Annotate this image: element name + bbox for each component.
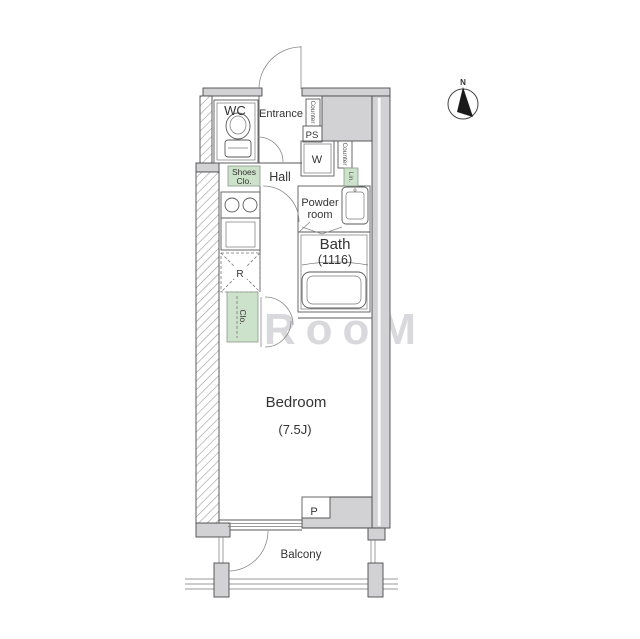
compass: N [448,78,478,119]
label-linen: Lin. [347,172,354,183]
wc-door [258,137,283,162]
balcony-structure [185,537,398,597]
kitchen-counter [221,218,260,250]
label-pipe: P [310,506,317,518]
powder-door [299,222,310,232]
wall-bottom-left-cap [196,523,230,537]
stove-icon [221,192,260,218]
balcony-door [228,531,268,571]
floorplan-drawing: RooM [0,0,640,639]
label-powder-line2: room [307,209,332,221]
label-counter-entrance: Counter [309,100,316,124]
floorplan-page: RooM [0,0,640,639]
wall-block-topright [322,96,372,141]
bathtub-icon [302,262,368,308]
wall-left-lower-hatched [196,172,219,523]
label-closet: Clo. [238,309,248,324]
hall-door [263,186,299,222]
balcony-post-left [214,563,229,597]
label-bedroom: Bedroom [266,394,327,411]
washbasin-icon [342,187,368,224]
label-wc: WC [224,103,246,118]
label-ps: PS [306,130,319,141]
wall-right-core [378,98,381,526]
label-counter-powder: Counter [341,142,348,166]
wall-top-right [302,88,390,96]
toilet-icon [225,113,251,157]
label-powder-line1: Powder [301,197,339,209]
balcony-post-right [368,563,383,597]
entrance-door [259,46,301,89]
wall-top-left [203,88,262,96]
wall-left-upper-hatched [200,96,212,163]
label-hall: Hall [269,170,291,184]
wall-right [372,96,390,528]
label-bath: Bath [320,236,351,253]
wall-left-step [196,163,219,172]
label-balcony: Balcony [281,549,322,561]
compass-north-label: N [460,78,466,87]
wall-bottom-right-cap [368,528,385,540]
label-bedroom-size: (7.5J) [278,422,311,437]
label-bath-size: (1116) [318,253,352,267]
label-fridge: R [236,269,243,280]
bath-folding-door [302,227,342,234]
label-shoes-line2: Clo. [236,176,251,186]
label-washer: W [312,154,323,166]
label-entrance: Entrance [259,108,303,120]
